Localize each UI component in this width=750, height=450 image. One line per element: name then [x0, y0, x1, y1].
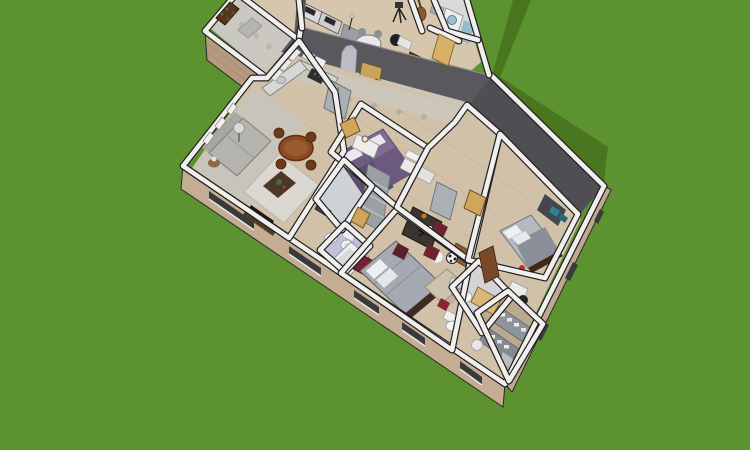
- dining-chair: [306, 132, 316, 142]
- chair: [358, 28, 366, 36]
- decor-red: [283, 186, 286, 189]
- washer-door: [448, 16, 457, 25]
- bowl-orange: [422, 214, 427, 219]
- camera: [395, 2, 403, 8]
- floor-lamp: [234, 123, 245, 134]
- dining-chair: [276, 159, 286, 169]
- table-lamp: [362, 136, 368, 142]
- laundry-basket: [472, 340, 483, 351]
- plant: [276, 179, 282, 185]
- dining-chair: [306, 160, 316, 170]
- table-lamp: [212, 157, 217, 162]
- mic: [350, 14, 354, 18]
- floorplan-viewport[interactable]: [0, 0, 750, 450]
- chair: [374, 30, 382, 38]
- dining-chair: [274, 128, 284, 138]
